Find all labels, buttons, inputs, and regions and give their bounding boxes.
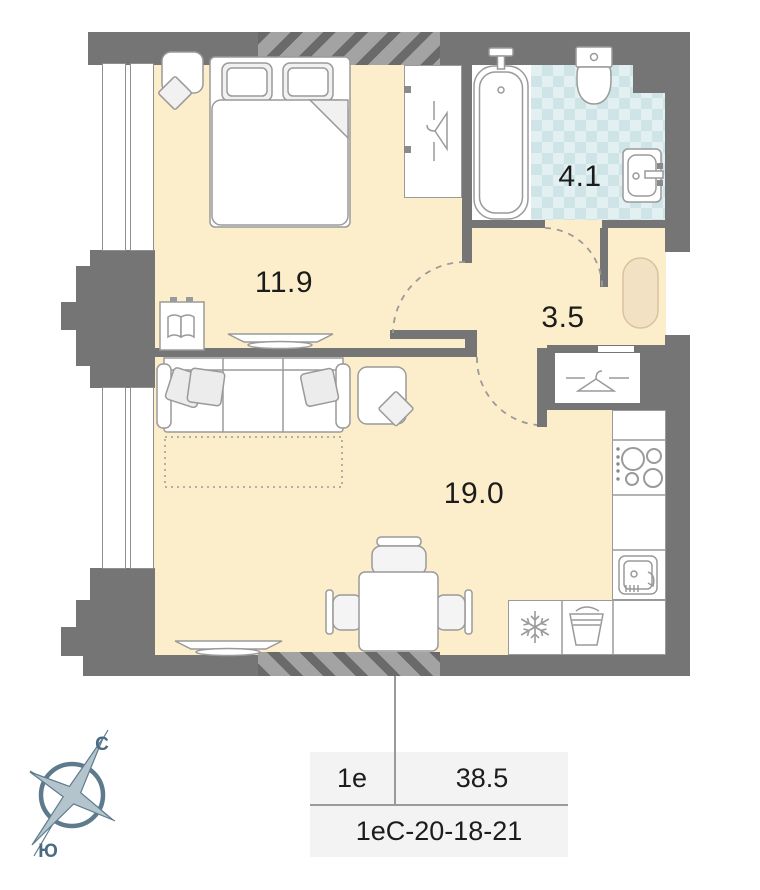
sofa-bed-dotted-outline <box>165 437 342 487</box>
compass-north-label: С <box>95 734 109 756</box>
kitchen-sink-icon <box>619 556 657 594</box>
chair-right <box>436 590 472 634</box>
total-area-cell: 38.5 <box>396 752 568 804</box>
layout-code-cell: 1е <box>310 752 394 804</box>
bathroom-door-arc <box>545 228 602 287</box>
room-label-bathroom: 4.1 <box>558 160 601 194</box>
fridge-snowflake-icon <box>519 611 551 643</box>
floorplan-canvas: 11.9 4.1 3.5 19.0 С Ю 1е 38.5 1еС-20-18-… <box>0 0 760 890</box>
dining-set <box>326 537 472 651</box>
chair-left <box>326 590 362 634</box>
book-icon <box>168 315 194 337</box>
stove-icon <box>616 447 662 487</box>
bookshelf <box>160 297 204 350</box>
room-label-bedroom: 11.9 <box>255 266 313 300</box>
toilet-icon <box>576 47 612 104</box>
chair-top <box>372 537 426 575</box>
closet-hanger-icon <box>566 371 629 391</box>
dining-table <box>359 572 438 651</box>
room-label-hallway: 3.5 <box>541 301 584 335</box>
radiator-living <box>175 641 282 656</box>
radiator-bedroom <box>228 334 333 349</box>
compass-south-label: Ю <box>38 841 58 863</box>
nightstand <box>158 52 203 110</box>
room-label-living-kitchen: 19.0 <box>444 477 504 511</box>
bedroom-wardrobe-hanger <box>404 86 447 161</box>
bed <box>210 57 350 227</box>
bedroom-door-arc <box>393 262 465 333</box>
sofa <box>157 358 350 432</box>
bathroom-sink-icon <box>623 149 663 202</box>
hanger-icon <box>427 101 447 161</box>
living-door-arc <box>477 357 537 425</box>
doormat <box>623 258 658 328</box>
apartment-code-cell: 1еС-20-18-21 <box>310 805 568 857</box>
bathtub <box>474 48 528 219</box>
side-table <box>358 367 414 426</box>
laundry-basin-icon <box>570 607 603 645</box>
